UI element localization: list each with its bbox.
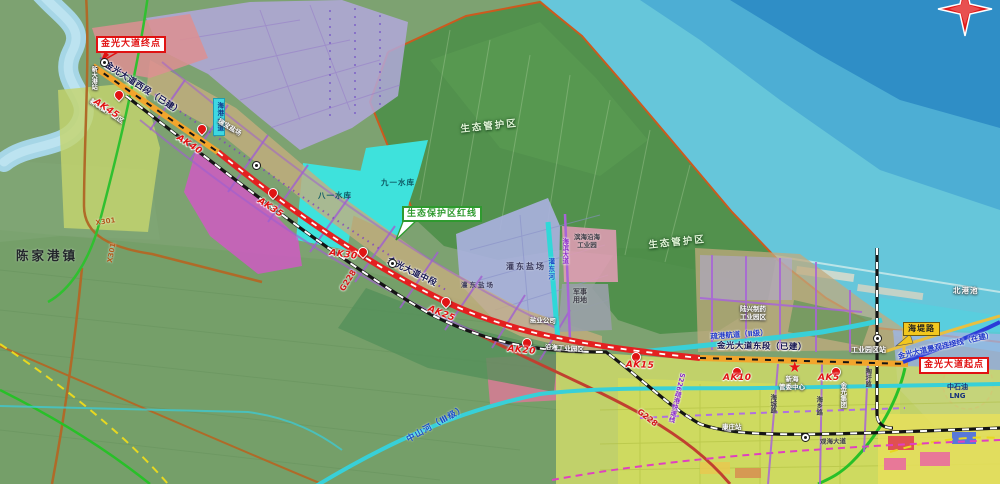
station-label-kangzhuang: 康庄站 <box>722 424 742 432</box>
zone-label-xinhai-line2: 管委中心 <box>779 384 805 392</box>
station-icon-south <box>801 433 810 442</box>
zone-label-military-line2: 用地 <box>573 296 587 304</box>
planning-map-canvas: 金光大道终点 金光大道起点 生态保护区红线 海堤路 金光大道西段（已建） 金光大… <box>0 0 1000 484</box>
map-base-layer <box>0 0 1000 484</box>
zone-label-lng: 中石油 LNG <box>947 383 968 401</box>
station-label-xindagang: 新大港站 <box>90 66 97 90</box>
chainage-label-ak10: AK10 <box>723 373 751 384</box>
station-icon-mid-2 <box>388 259 397 268</box>
road-label-guanhai-avenue: 观海大道 <box>820 438 846 447</box>
zone-label-binhai-park: 滨海沿海 工业园 <box>574 234 600 250</box>
chainage-label-ak5: AK5 <box>818 373 840 384</box>
road-label-taoxu: 陶圩路 <box>863 368 871 388</box>
station-icon-mid-1 <box>252 161 261 170</box>
zone-label-guandong-salt-1: 灌东盐场 <box>506 262 546 272</box>
zone-label-xinhai-center: 新海 管委中心 <box>779 376 805 392</box>
station-icon-gongyeyuanqu <box>873 334 882 343</box>
water-label-guandong-river: 灌东河 <box>546 258 554 281</box>
road-label-haixiang: 海乡路 <box>814 396 822 416</box>
endpoint-marker-box: 金光大道终点 <box>96 36 166 53</box>
station-icon-xindagang <box>100 58 109 67</box>
water-label-north-basin: 北港池 <box>953 286 979 295</box>
zone-label-guandong-salt-2: 灌东盐场 <box>461 282 495 290</box>
zone-label-luxing-line2: 工业园区 <box>740 314 766 322</box>
zone-label-jinguang-group: 金光集团 <box>838 382 846 408</box>
startpoint-marker-box: 金光大道起点 <box>919 357 989 374</box>
zone-label-military: 军事 用地 <box>573 288 587 305</box>
road-label-haigang-avenue: 海港大道 <box>213 98 225 136</box>
zone-label-chenjiagang-town: 陈家港镇 <box>16 248 78 263</box>
zone-label-lng-line2: LNG <box>947 392 968 401</box>
water-label-jiuyi-reservoir: 九一水库 <box>381 178 415 187</box>
zone-label-lng-line1: 中石油 <box>947 383 968 392</box>
chainage-label-ak15: AK15 <box>626 360 655 372</box>
road-label-haicheng: 海城路 <box>768 394 776 414</box>
zone-label-luxing-park: 陆兴制药 工业园区 <box>740 306 766 322</box>
station-label-gongyeyuanqu: 工业园区站 <box>851 346 886 354</box>
road-label-haibin-avenue: 海滨大道 <box>560 238 568 264</box>
water-label-bayi-reservoir: 八一水库 <box>318 191 352 200</box>
government-star-icon: ★ <box>788 360 801 375</box>
seawall-road-box: 海堤路 <box>903 322 940 336</box>
eco-redline-box: 生态保护区红线 <box>402 206 482 222</box>
zone-label-binhai-line2: 工业园 <box>574 242 600 250</box>
road-label-east-section: 金光大道东段（已建） <box>717 341 807 353</box>
zone-label-yanye-company: 盐业公司 <box>530 317 556 326</box>
